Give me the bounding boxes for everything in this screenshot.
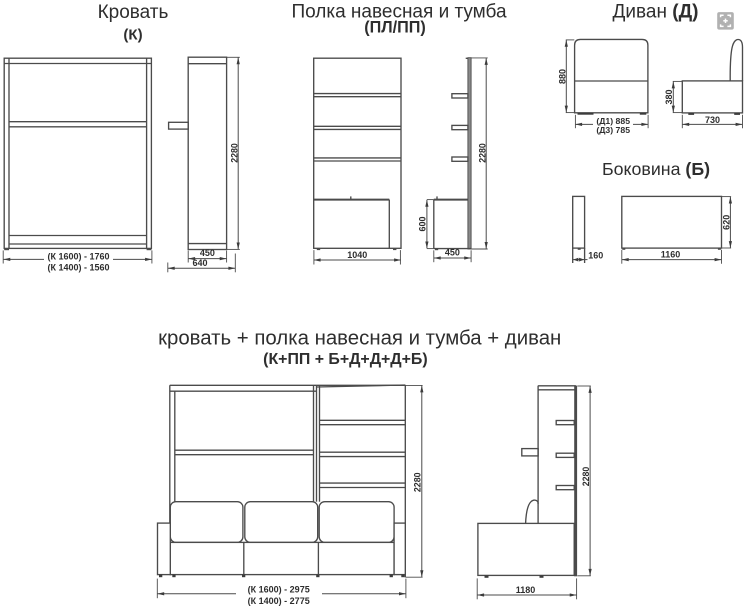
svg-text:(К 1400) - 2775: (К 1400) - 2775: [248, 596, 310, 606]
svg-text:2280: 2280: [413, 472, 423, 492]
svg-text:Боковина (Б): Боковина (Б): [602, 159, 710, 179]
svg-text:2280: 2280: [581, 467, 591, 487]
svg-text:450: 450: [200, 248, 215, 258]
svg-text:1040: 1040: [347, 250, 367, 260]
svg-text:2280: 2280: [477, 143, 487, 163]
svg-text:Кровать: Кровать: [98, 2, 169, 23]
svg-text:кровать + полка навесная и тум: кровать + полка навесная и тумба + диван: [158, 328, 561, 350]
svg-text:620: 620: [721, 215, 731, 230]
svg-text:(Д3) 785: (Д3) 785: [596, 125, 630, 135]
svg-text:(К+ПП + Б+Д+Д+Д+Б): (К+ПП + Б+Д+Д+Д+Б): [263, 351, 427, 368]
svg-text:(К): (К): [123, 27, 142, 44]
svg-text:730: 730: [705, 115, 720, 125]
svg-text:(ПЛ/ПП): (ПЛ/ПП): [364, 18, 426, 36]
svg-text:Диван (Д): Диван (Д): [613, 2, 699, 23]
svg-text:1160: 1160: [661, 249, 681, 259]
svg-text:2280: 2280: [229, 143, 239, 163]
svg-text:640: 640: [192, 258, 207, 268]
svg-text:(К 1600) - 2975: (К 1600) - 2975: [248, 584, 310, 594]
svg-text:1180: 1180: [516, 585, 536, 595]
svg-text:880: 880: [557, 69, 567, 84]
svg-text:(К 1400) - 1560: (К 1400) - 1560: [47, 262, 109, 272]
svg-text:160: 160: [588, 250, 603, 260]
svg-text:600: 600: [418, 216, 428, 231]
svg-text:380: 380: [664, 89, 674, 104]
svg-text:450: 450: [445, 248, 460, 258]
svg-text:(К 1600) - 1760: (К 1600) - 1760: [47, 251, 109, 261]
